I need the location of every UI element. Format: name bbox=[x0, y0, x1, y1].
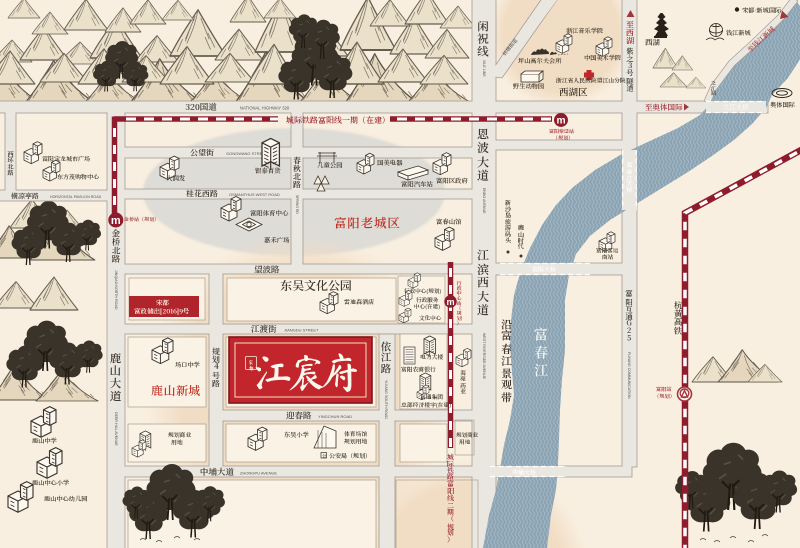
svg-text:JIANGDU STREET: JIANGDU STREET bbox=[284, 328, 319, 333]
svg-text:杭黄高铁: 杭黄高铁 bbox=[672, 300, 684, 335]
svg-text:中埔大道: 中埔大道 bbox=[200, 466, 235, 478]
svg-text:望波路: 望波路 bbox=[254, 264, 280, 276]
svg-text:鹿山中心小学: 鹿山中心小学 bbox=[32, 478, 70, 487]
svg-text:横凉亭路: 横凉亭路 bbox=[11, 192, 39, 202]
svg-text:金桥站（规划）: 金桥站（规划） bbox=[124, 216, 159, 223]
svg-text:用地: 用地 bbox=[171, 438, 183, 447]
svg-text:野生动物园: 野生动物园 bbox=[512, 82, 545, 91]
svg-text:富政储出[2016]9号: 富政储出[2016]9号 bbox=[134, 307, 190, 316]
svg-text:320国道: 320国道 bbox=[185, 101, 217, 113]
svg-text:江渡街: 江渡街 bbox=[251, 323, 277, 335]
svg-text:浙江省人民医院望江山分院: 浙江省人民医院望江山分院 bbox=[555, 76, 626, 85]
svg-text:沿富春江景观带: 沿富春江景观带 bbox=[499, 318, 515, 403]
svg-text:之江路: 之江路 bbox=[710, 80, 717, 96]
svg-text:大润发: 大润发 bbox=[166, 174, 186, 183]
svg-text:鹿山中学: 鹿山中学 bbox=[32, 436, 58, 445]
svg-text:桂花西路: 桂花西路 bbox=[185, 189, 218, 200]
svg-text:公望街: 公望街 bbox=[190, 148, 214, 159]
svg-text:东方茂购物中心: 东方茂购物中心 bbox=[57, 172, 99, 181]
svg-text:至奥体国际: 至奥体国际 bbox=[645, 102, 683, 113]
svg-text:OSMANTHUS WEST ROAD: OSMANTHUS WEST ROAD bbox=[229, 192, 280, 197]
svg-text:富阳区政府: 富阳区政府 bbox=[436, 176, 468, 185]
svg-text:公: 公 bbox=[322, 454, 327, 460]
svg-text:至西湖: 至西湖 bbox=[625, 20, 636, 44]
svg-text:富阳大桥: 富阳大桥 bbox=[532, 265, 557, 274]
svg-text:（规划）: （规划） bbox=[553, 135, 573, 142]
svg-text:鹿山时代: 鹿山时代 bbox=[517, 224, 526, 250]
svg-text:紫之3号隧道: 紫之3号隧道 bbox=[625, 47, 636, 92]
svg-text:富春山馆: 富春山馆 bbox=[436, 217, 462, 226]
svg-text:鹿山中心幼儿园: 鹿山中心幼儿园 bbox=[44, 494, 88, 503]
svg-text:城际铁路富阳线一期（在建）: 城际铁路富阳线一期（在建） bbox=[286, 115, 390, 126]
svg-text:东吴小学: 东吴小学 bbox=[284, 430, 310, 439]
svg-text:南站: 南站 bbox=[601, 253, 614, 261]
svg-text:浙江音乐学院: 浙江音乐学院 bbox=[566, 26, 604, 35]
svg-text:HORIZONTAL PAVILION ROAD: HORIZONTAL PAVILION ROAD bbox=[50, 195, 102, 199]
svg-text:富春江: 富春江 bbox=[531, 327, 551, 381]
svg-text:西环北路: 西环北路 bbox=[6, 150, 15, 177]
svg-text:富阳宝龙城市广场: 富阳宝龙城市广场 bbox=[42, 154, 91, 163]
svg-text:ENBO AVENUE: ENBO AVENUE bbox=[482, 188, 486, 214]
svg-text:JINQIAO NORTH ROAD: JINQIAO NORTH ROAD bbox=[114, 270, 118, 310]
svg-text:府: 府 bbox=[320, 352, 360, 393]
svg-text:场口中学: 场口中学 bbox=[175, 360, 201, 369]
svg-text:总部经济楼宇(在建): 总部经济楼宇(在建) bbox=[401, 400, 451, 409]
svg-text:富春江大桥: 富春江大桥 bbox=[625, 162, 634, 194]
svg-text:雷迪森酒店: 雷迪森酒店 bbox=[343, 297, 374, 306]
svg-text:宋都·新城国际: 宋都·新城国际 bbox=[742, 6, 781, 15]
svg-text:富阳老城区: 富阳老城区 bbox=[334, 214, 401, 232]
svg-text:闲祝线: 闲祝线 bbox=[475, 20, 491, 58]
svg-text:SPRING RD: SPRING RD bbox=[295, 195, 299, 214]
svg-text:银泰百货: 银泰百货 bbox=[255, 166, 281, 175]
svg-text:WEST RIVERSIDE AVENUE: WEST RIVERSIDE AVENUE bbox=[482, 333, 486, 380]
svg-text:城际铁路富阳线二期（规划）: 城际铁路富阳线二期（规划） bbox=[446, 452, 456, 543]
svg-text:DEER HILL AVENUE: DEER HILL AVENUE bbox=[114, 412, 118, 446]
svg-text:XILE LINE: XILE LINE bbox=[482, 60, 486, 77]
svg-text:富阳站: 富阳站 bbox=[655, 386, 672, 393]
svg-text:规划4号路: 规划4号路 bbox=[211, 347, 222, 388]
svg-text:公安局（规划）: 公安局（规划） bbox=[329, 451, 371, 460]
svg-text:NATIONAL HIGHWAY 320: NATIONAL HIGHWAY 320 bbox=[240, 106, 290, 111]
svg-text:新沙岛旅游码头: 新沙岛旅游码头 bbox=[504, 199, 513, 243]
svg-text:钱江新城: 钱江新城 bbox=[726, 28, 752, 37]
svg-text:迎春路: 迎春路 bbox=[286, 410, 312, 422]
svg-text:奥体国际: 奥体国际 bbox=[770, 100, 795, 109]
svg-text:春秋北路: 春秋北路 bbox=[292, 156, 303, 189]
svg-text:电力大楼: 电力大楼 bbox=[420, 352, 443, 361]
svg-text:东吴文化公园: 东吴文化公园 bbox=[280, 277, 352, 294]
svg-text:文化中心: 文化中心 bbox=[419, 314, 442, 322]
svg-text:西湖区: 西湖区 bbox=[559, 85, 588, 99]
svg-text:国美电器: 国美电器 bbox=[377, 158, 403, 167]
svg-text:中国美术学院: 中国美术学院 bbox=[584, 53, 622, 62]
svg-text:嘉禾广场: 嘉禾广场 bbox=[263, 236, 290, 245]
svg-text:中埔大桥: 中埔大桥 bbox=[512, 468, 537, 477]
svg-text:海亮药业: 海亮药业 bbox=[459, 370, 468, 394]
svg-text:YIJIANG SOUTH ROAD: YIJIANG SOUTH ROAD bbox=[384, 380, 388, 419]
svg-text:儿童公园: 儿童公园 bbox=[317, 161, 343, 170]
svg-text:鹿山大道: 鹿山大道 bbox=[108, 351, 124, 403]
svg-text:西湖: 西湖 bbox=[645, 37, 660, 48]
svg-text:FUYANG COMMUNICATION: FUYANG COMMUNICATION bbox=[627, 352, 631, 399]
svg-text:金桥北路: 金桥北路 bbox=[110, 228, 122, 264]
svg-text:用地: 用地 bbox=[459, 438, 471, 446]
svg-text:中心(在建): 中心(在建) bbox=[414, 303, 440, 311]
svg-text:富阳互通G25: 富阳互通G25 bbox=[624, 290, 635, 342]
svg-text:行政中心站（规划）: 行政中心站（规划） bbox=[455, 280, 463, 326]
svg-text:之江大桥: 之江大桥 bbox=[723, 103, 750, 112]
svg-text:江滨西大道: 江滨西大道 bbox=[475, 249, 492, 317]
svg-text:鹿山新城: 鹿山新城 bbox=[151, 382, 201, 399]
svg-text:富阳体育中心: 富阳体育中心 bbox=[250, 209, 289, 218]
svg-text:坪山高尔夫会所: 坪山高尔夫会所 bbox=[518, 56, 562, 65]
svg-text:依江路: 依江路 bbox=[379, 340, 394, 375]
svg-text:（规划）: （规划） bbox=[654, 393, 675, 400]
svg-text:富阳汽车站: 富阳汽车站 bbox=[401, 180, 434, 189]
svg-text:ZHONGPU AVENUE: ZHONGPU AVENUE bbox=[240, 471, 277, 476]
svg-text:YINGCHUN ROAD: YINGCHUN ROAD bbox=[318, 414, 352, 419]
svg-text:富阳农商银行: 富阳农商银行 bbox=[400, 365, 436, 374]
svg-text:恩波大道: 恩波大道 bbox=[475, 128, 492, 182]
svg-text:规划用地: 规划用地 bbox=[344, 437, 367, 446]
